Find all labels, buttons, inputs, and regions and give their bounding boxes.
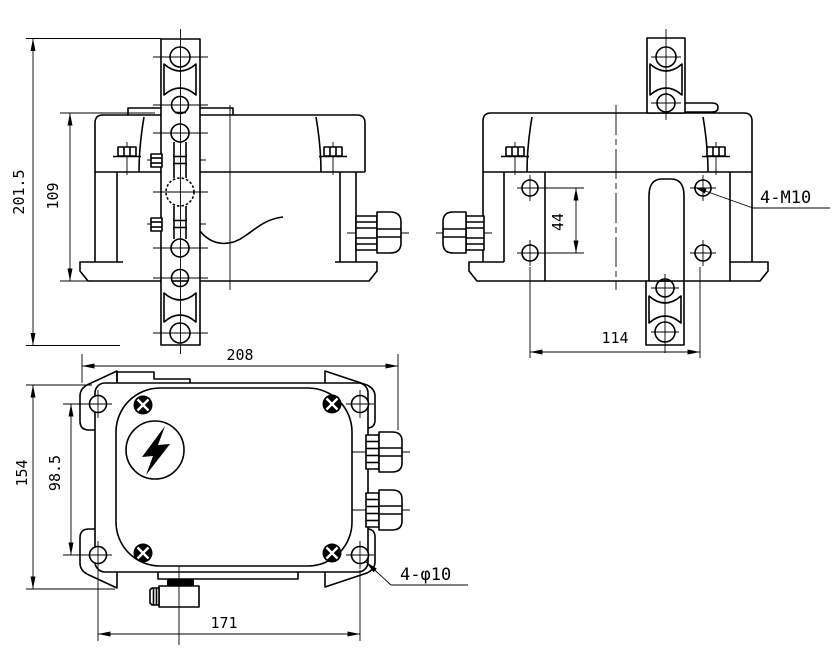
dim-text-44: 44 [549, 213, 567, 231]
front-mounting-strip [147, 29, 208, 354]
dim-text-208: 208 [226, 346, 253, 364]
dim-plan-hole-spacing-horizontal: 171 [98, 570, 360, 641]
dim-front-body-height: 109 [44, 113, 155, 281]
side-strip-bottom [646, 274, 684, 353]
drawing-sheet: 201.5 109 [0, 0, 832, 662]
side-strip-top [647, 29, 718, 120]
dim-text-109: 109 [44, 182, 62, 209]
strip-clamp-bolt-upper [151, 154, 162, 167]
dim-text-114: 114 [601, 329, 628, 347]
technical-drawing-canvas: 201.5 109 [0, 0, 832, 662]
callout-text-4-M10: 4-M10 [760, 188, 811, 208]
dim-side-hole-spacing-vertical: 44 [540, 188, 584, 253]
front-cable-gland [347, 212, 409, 253]
plan-bottom-connector [150, 562, 298, 645]
dim-text-98-5: 98.5 [46, 455, 64, 491]
front-view: 201.5 109 [10, 29, 409, 354]
side-view: 44 114 4-M10 [436, 29, 830, 358]
front-top-bolt-left [113, 142, 141, 175]
dim-front-overall-height: 201.5 [10, 39, 161, 346]
strip-clamp-bolt-lower [151, 218, 162, 231]
callout-thread-4-M10: 4-M10 [694, 187, 830, 208]
screw-bottom-right [323, 544, 342, 563]
side-top-bolt-left [501, 142, 529, 175]
dim-text-201-5: 201.5 [10, 169, 28, 214]
callout-hole-4-phi10: 4-φ10 [366, 562, 468, 585]
screw-top-right [323, 395, 342, 414]
screw-top-left [134, 396, 153, 415]
plan-view: 208 154 98.5 171 4-φ10 [13, 346, 468, 645]
side-mounting-holes [517, 175, 716, 266]
dim-text-171: 171 [210, 614, 237, 632]
screw-bottom-left [134, 544, 153, 563]
callout-text-4-phi10: 4-φ10 [400, 565, 451, 585]
side-cable-gland [436, 212, 492, 253]
front-housing-outline [80, 105, 377, 290]
dim-text-154: 154 [13, 459, 31, 486]
plan-cover-lid [116, 388, 352, 566]
front-top-bolt-right [319, 142, 347, 175]
plan-top-tab [117, 372, 190, 383]
dim-plan-hole-spacing-vertical: 98.5 [46, 404, 86, 555]
